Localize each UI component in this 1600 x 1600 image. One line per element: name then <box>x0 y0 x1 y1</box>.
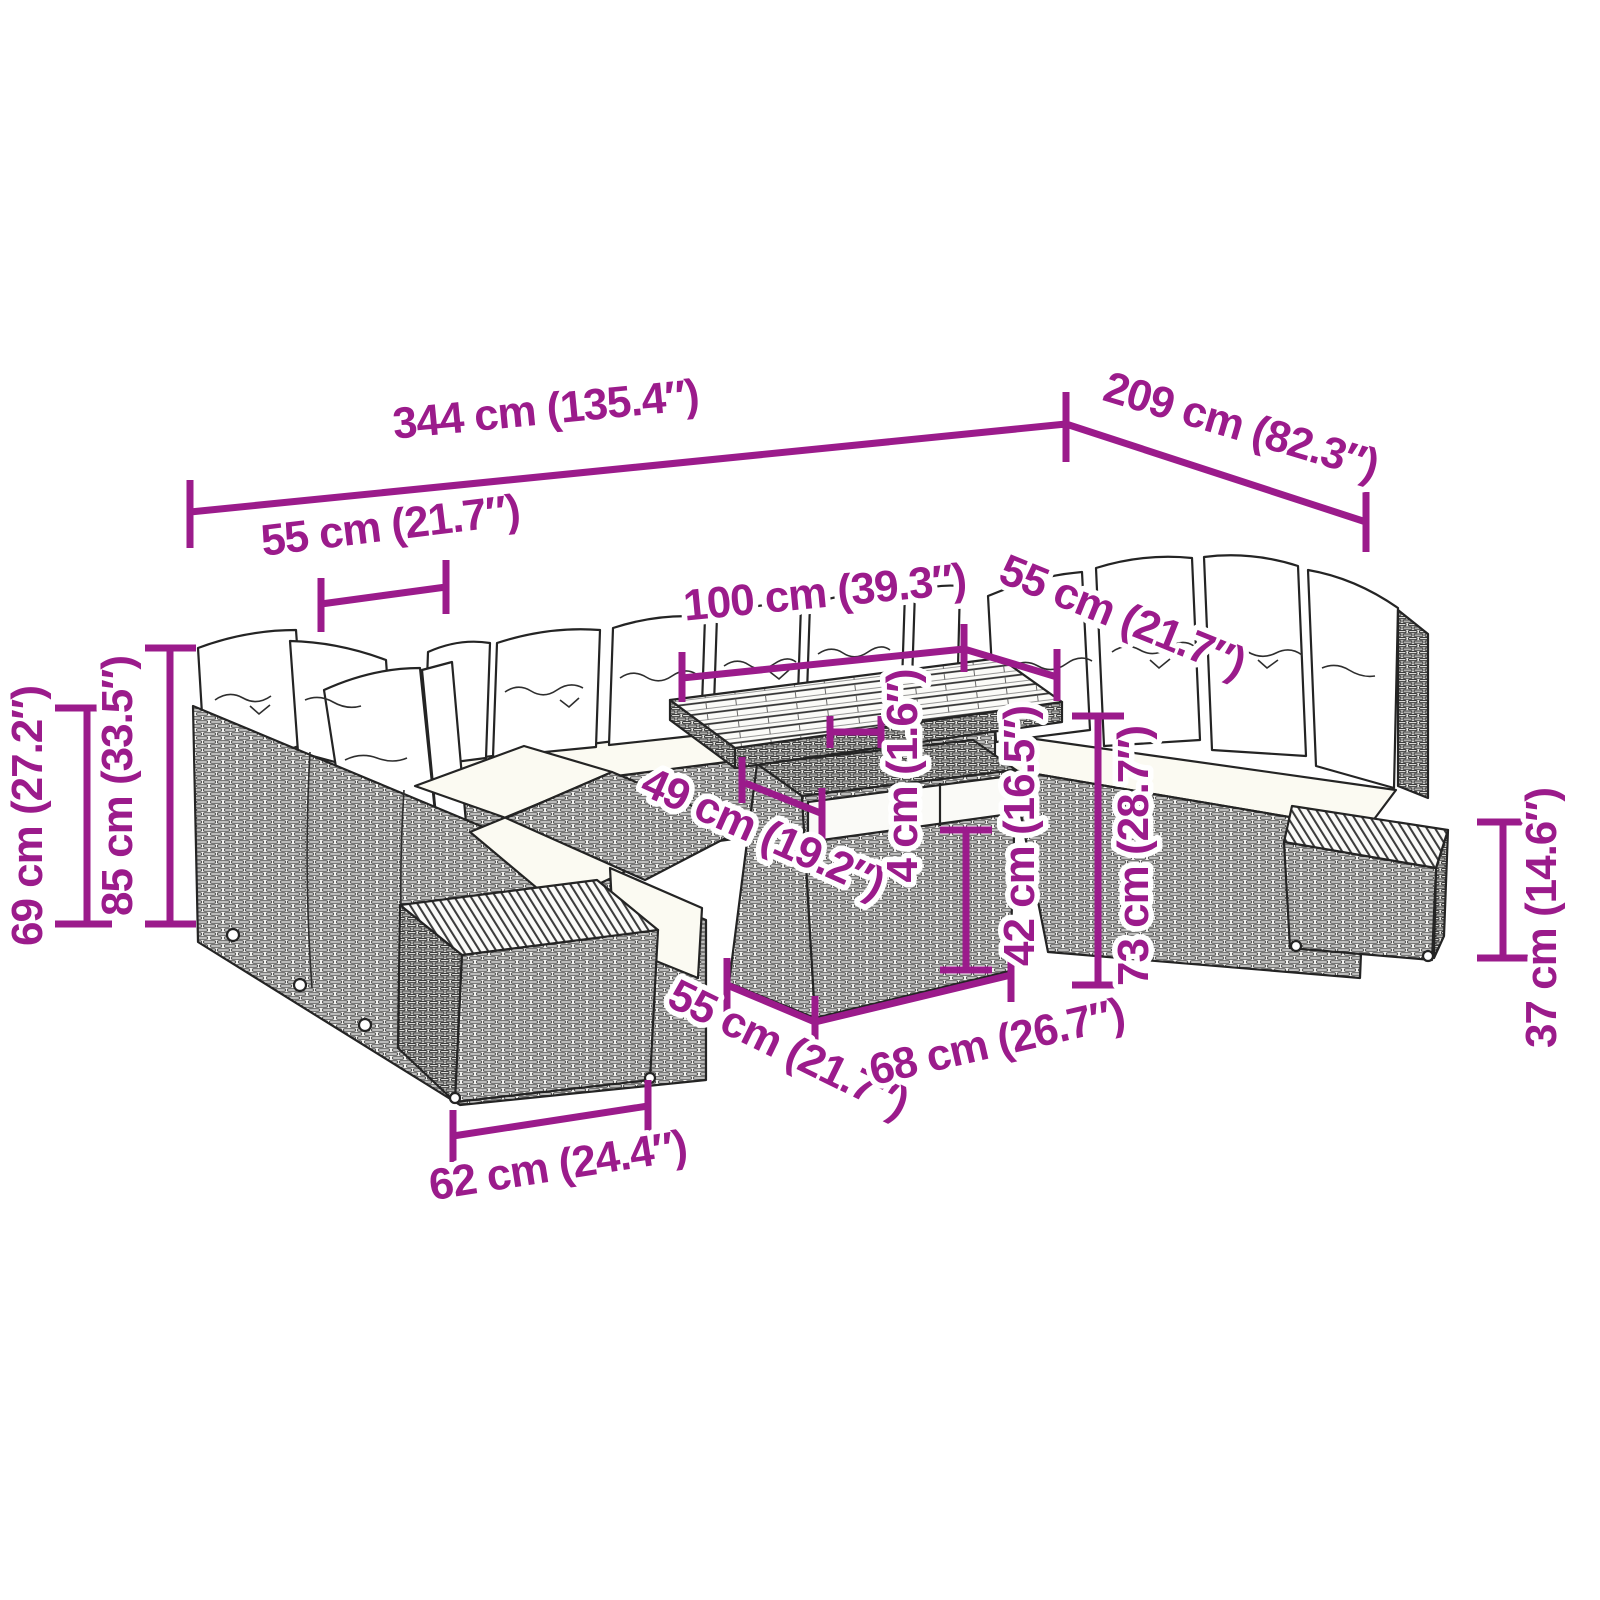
label-table-base-height: 42 cm (16.5″) <box>995 706 1044 966</box>
right-footstool <box>1284 806 1448 961</box>
left-footstool <box>398 880 658 1103</box>
label-arm-height: 69 cm (27.2″) <box>3 686 52 946</box>
left-footstool-front <box>455 930 658 1102</box>
right-corner-post <box>1398 610 1428 798</box>
label-table-height: 73 cm (28.7″) <box>1109 726 1158 986</box>
label-back-height: 85 cm (33.5″) <box>93 656 142 916</box>
right-pillow-4 <box>1308 570 1398 788</box>
diagram-canvas: 344 cm (135.4″) 209 cm (82.3″) 55 cm (21… <box>0 0 1600 1600</box>
product-dimension-diagram: 344 cm (135.4″) 209 cm (82.3″) 55 cm (21… <box>0 0 1600 1600</box>
label-stool-height: 37 cm (14.6″) <box>1517 788 1566 1048</box>
label-tabletop-thickness: 4 cm (1.6″) <box>878 669 927 882</box>
